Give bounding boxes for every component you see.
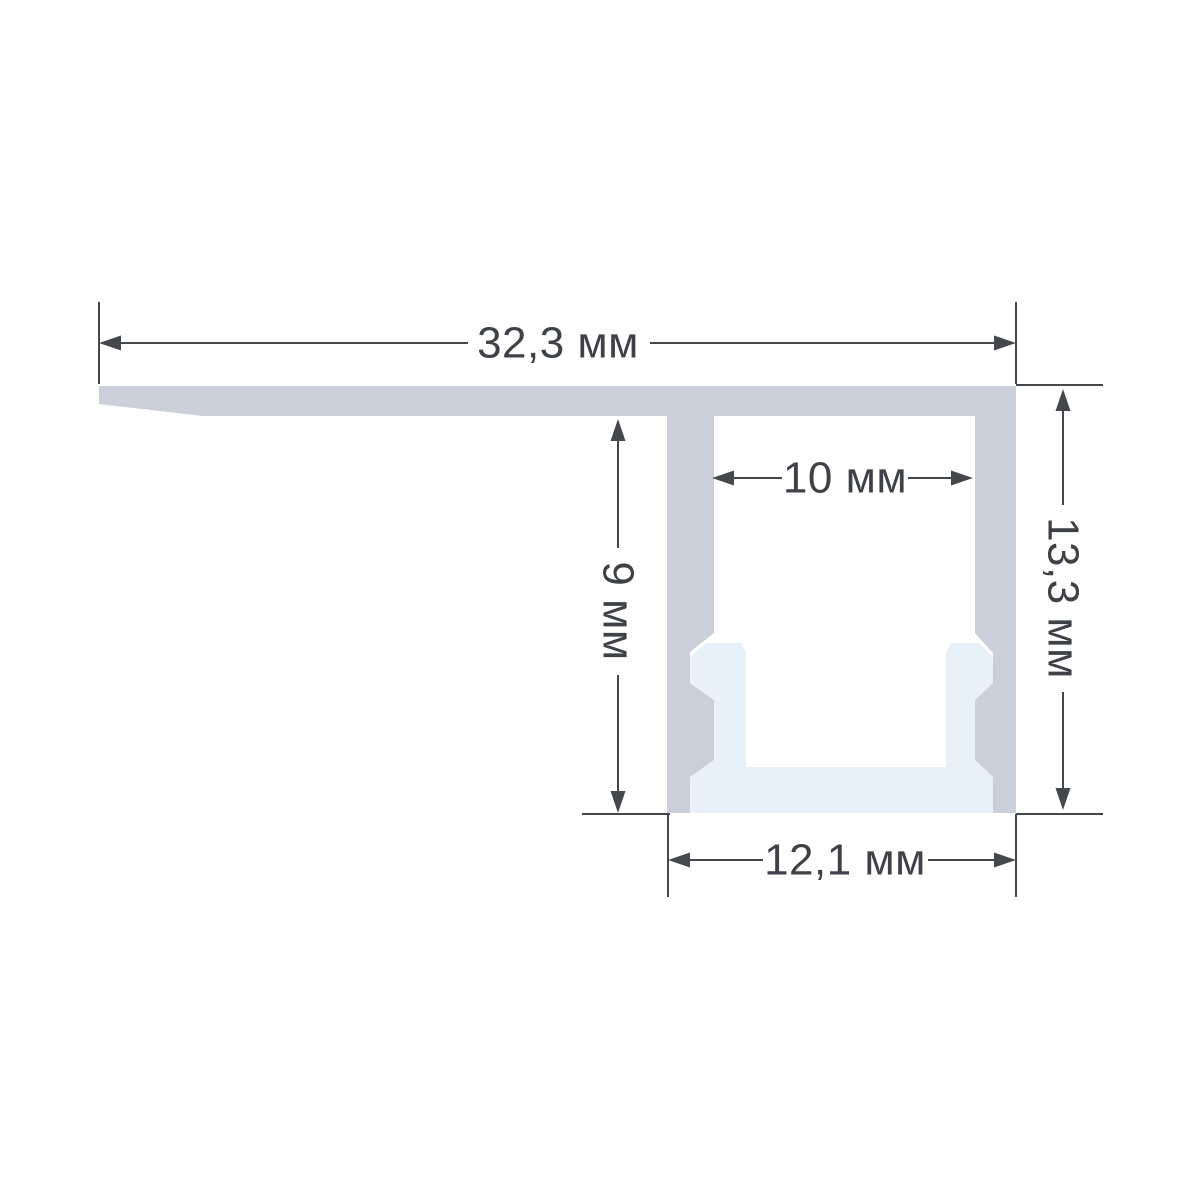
arrow-right-icon — [994, 336, 1016, 351]
arrow-up-icon — [611, 419, 626, 441]
diffuser-shape — [690, 643, 993, 813]
arrow-left-icon — [99, 336, 121, 351]
body-height-label: 9 мм — [594, 561, 643, 660]
arrow-up-icon — [1056, 389, 1071, 411]
overall-width-label: 32,3 мм — [477, 319, 639, 368]
arrow-down-icon — [611, 791, 626, 813]
drawing-canvas: 32,3 мм 10 мм 9 мм 13,3 мм 12,1 мм — [0, 0, 1200, 1201]
aluminum-profile-shape — [99, 386, 1016, 813]
overall-height-label: 13,3 мм — [1039, 517, 1088, 679]
profile-dimensional-drawing: 32,3 мм 10 мм 9 мм 13,3 мм 12,1 мм — [0, 0, 1200, 1201]
slot-inner-width-label: 10 мм — [783, 454, 907, 503]
arrow-down-icon — [1056, 788, 1071, 810]
arrow-right-icon — [994, 853, 1016, 868]
arrow-right-icon — [951, 471, 973, 486]
arrow-left-icon — [712, 471, 734, 486]
body-outer-width-label: 12,1 мм — [764, 836, 926, 885]
profile-cross-section — [99, 386, 1016, 813]
arrow-left-icon — [668, 853, 690, 868]
